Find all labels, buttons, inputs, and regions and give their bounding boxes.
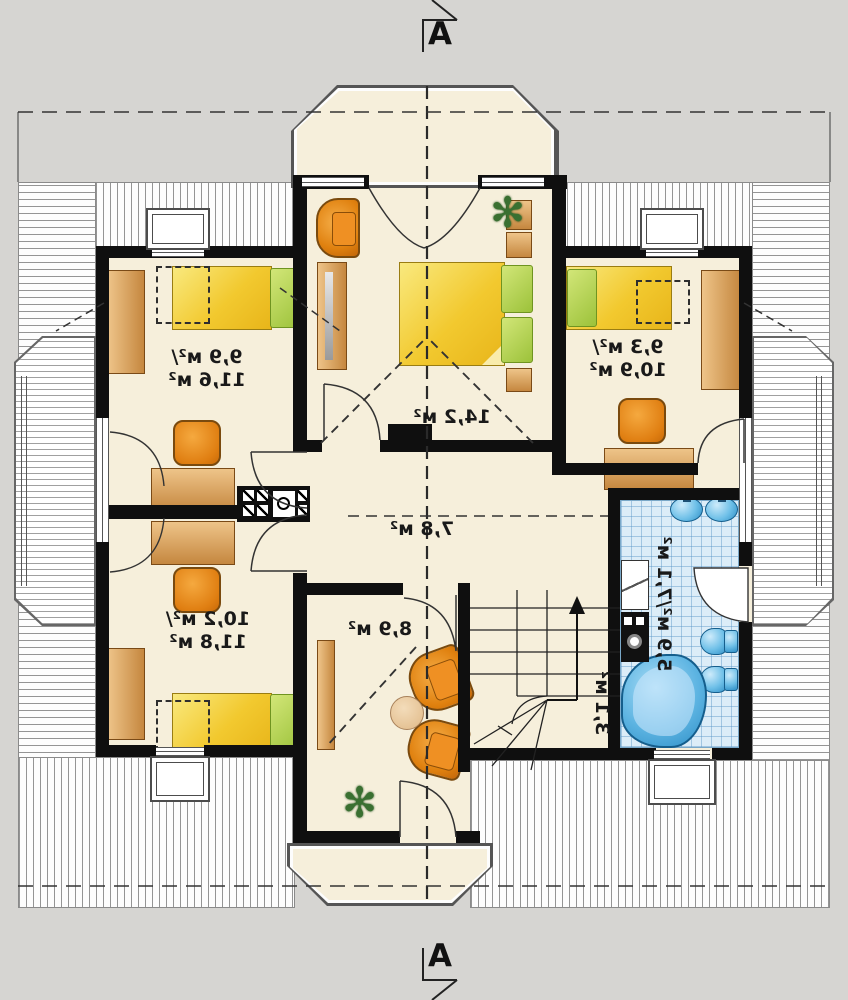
- shower-tray-icon: [621, 560, 649, 610]
- wall: [96, 745, 156, 757]
- armchair-seat: [423, 731, 461, 772]
- bidet-tank-icon: [724, 668, 738, 691]
- area-line: 11,6 м²: [148, 369, 266, 392]
- dormer-window: [146, 208, 210, 250]
- flue-icon: [257, 490, 268, 501]
- washer-knob-icon: [636, 617, 644, 625]
- window: [654, 750, 710, 759]
- dormer-window: [150, 756, 210, 802]
- pillow: [501, 265, 533, 313]
- flue-icon: [243, 490, 254, 501]
- wall: [458, 748, 656, 760]
- wall: [293, 188, 307, 440]
- area-line: 11,8 м²: [142, 631, 274, 654]
- chimney-block: [237, 486, 310, 522]
- armchair-seat: [332, 212, 356, 246]
- desk: [151, 521, 235, 565]
- flue-icon: [243, 505, 254, 516]
- section-letter-top: A: [428, 16, 452, 52]
- bay-left-mullion-1: [21, 376, 22, 586]
- area-line: 9,9 м²/: [148, 346, 266, 369]
- bay-window-left-glass: [16, 338, 94, 624]
- balcony-bottom-deck: [293, 849, 487, 900]
- wardrobe: [701, 270, 741, 390]
- area-label-master: 14,2 м²: [396, 406, 508, 429]
- area-label-sitting-room: 8,9 м²: [332, 618, 428, 641]
- wall: [293, 573, 307, 843]
- dormer-glass: [152, 214, 204, 244]
- roof-window-outline: [156, 266, 210, 324]
- bay-right-mullion-2: [816, 376, 817, 586]
- bay-left-mullion-2: [26, 376, 27, 586]
- wardrobe: [107, 648, 145, 740]
- roof-window-outline: [156, 700, 210, 752]
- balcony-bottom: [287, 843, 493, 906]
- wall: [608, 488, 752, 500]
- area-label-bedroom-bottom-left: 10,2 м²/ 11,8 м²: [142, 608, 274, 654]
- wardrobe-mirror: [325, 272, 333, 360]
- area-line: 10,9 м²: [572, 359, 684, 382]
- area-label-staircase: 3,1 м²: [591, 657, 613, 749]
- flue-icon: [298, 490, 307, 501]
- window: [739, 418, 752, 542]
- balcony-top-deck: [297, 91, 553, 182]
- dormer-glass: [156, 762, 204, 796]
- master-wardrobe: [317, 262, 347, 370]
- window: [156, 747, 204, 756]
- vent-circle-icon: [277, 497, 290, 510]
- area-label-hall: 7,8 м²: [368, 518, 476, 541]
- vent-box: [273, 491, 295, 517]
- wall: [96, 542, 109, 757]
- double-bed: [399, 262, 505, 366]
- dormer-window: [648, 759, 716, 805]
- bay-window-left: [14, 336, 96, 626]
- section-letter-bottom: A: [428, 938, 452, 974]
- wardrobe: [107, 270, 145, 374]
- bay-window-right: [752, 336, 834, 626]
- armchair-icon: [316, 198, 360, 258]
- wall: [293, 831, 400, 843]
- desk-chair-icon: [173, 567, 221, 613]
- desk-chair-icon: [618, 398, 666, 444]
- sideboard: [317, 640, 335, 750]
- wall: [293, 440, 322, 452]
- window: [482, 177, 544, 187]
- wall: [739, 246, 752, 418]
- area-label-bathroom: 5,9 м²/7,1 м²: [651, 519, 675, 689]
- wall: [96, 246, 109, 418]
- balcony-top: [291, 85, 559, 188]
- round-table: [390, 696, 424, 730]
- window: [96, 418, 109, 542]
- area-label-bedroom-right: 9,3 м²/ 10,9 м²: [572, 336, 684, 382]
- wall: [458, 583, 470, 772]
- floor-plan: ✻ ✻: [0, 0, 848, 1000]
- area-label-bedroom-top-left: 9,9 м²/ 11,6 м²: [148, 346, 266, 392]
- dormer-window: [640, 208, 704, 250]
- wall: [739, 542, 752, 566]
- plant-icon: ✻: [342, 782, 377, 824]
- pillow: [567, 269, 597, 327]
- dormer-glass: [654, 765, 710, 799]
- wall: [739, 622, 752, 760]
- roof-window-outline: [636, 280, 690, 324]
- washer-knob-icon: [624, 617, 632, 625]
- wall: [456, 831, 480, 843]
- area-line: 9,3 м²/: [572, 336, 684, 359]
- wall: [293, 583, 403, 595]
- washing-machine-icon: [621, 612, 649, 662]
- area-line: 10,2 м²/: [142, 608, 274, 631]
- sink-icon: [705, 497, 738, 522]
- wall: [712, 748, 752, 760]
- window: [302, 177, 364, 187]
- toilet-tank-icon: [724, 630, 738, 653]
- flue-icon: [298, 505, 307, 516]
- dormer-glass: [646, 214, 698, 244]
- washer-drum-icon: [627, 634, 642, 649]
- bay-right-mullion-1: [821, 376, 822, 586]
- plant-icon: ✻: [490, 192, 525, 234]
- wall: [204, 745, 307, 757]
- nightstand: [506, 368, 532, 392]
- desk-chair-icon: [173, 420, 221, 466]
- flue-icon: [257, 505, 268, 516]
- wall: [552, 463, 698, 475]
- pillow: [501, 317, 533, 363]
- wall: [552, 188, 566, 463]
